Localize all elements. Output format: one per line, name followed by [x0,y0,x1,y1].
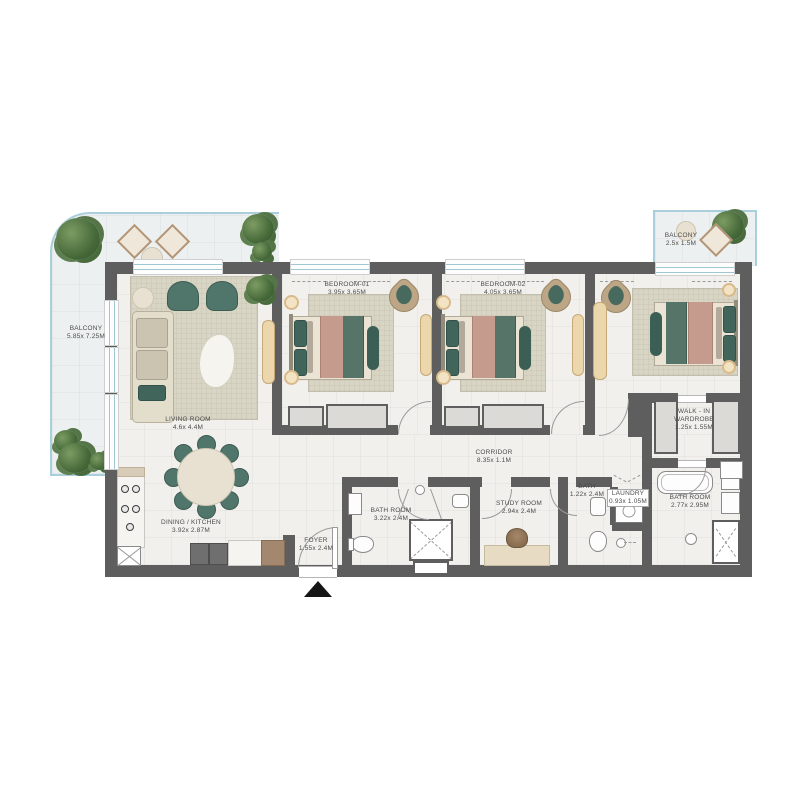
wall-laundry-bottom [612,523,642,531]
pillow [307,321,313,373]
dresser-icon [420,314,432,376]
room-dims: 5.85x 7.25M [67,333,105,341]
room-name: DINING / KITCHEN [161,519,221,527]
room-name: WARDROBE [674,416,714,424]
room-name: STUDY ROOM [496,500,542,508]
curtain-mark [692,281,732,282]
wall-bathroom1-left [342,477,352,565]
room-label-foyer: FOYER 1.55x 2.4M [299,537,333,553]
walkin-door-panel [720,461,743,479]
desk-chair-icon [506,528,528,548]
mirror-icon [348,493,362,515]
dining-table-icon [177,448,235,506]
bedroom1-wardrobe [326,404,388,430]
plant-icon [246,276,274,302]
shower-arm [624,542,636,543]
room-dims: 0.93x 1.05M [609,498,647,506]
bed-throw [666,302,687,364]
plant-icon [242,214,274,244]
armchair-icon [167,281,199,311]
console-icon [262,320,275,384]
room-label-walkin: WALK - IN WARDROBE 1.25x 1.55M [674,408,714,432]
room-name: CORRIDOR [476,449,513,457]
pillow [446,320,459,347]
stove-burner-icon [132,505,140,513]
room-label-dining: DINING / KITCHEN 3.92x 2.87M [161,519,221,535]
bed-bench-icon [650,312,662,356]
pillow [723,306,736,333]
room-label-laundry: LAUNDRY 0.93x 1.05M [607,489,649,507]
shower-tray-icon [712,520,740,564]
kitchen-shelf [117,467,145,477]
wall-walkin-left [642,393,652,468]
bed-blanket [688,302,713,364]
sofa-cushion [136,318,168,348]
nightstand-lamp-icon [284,370,299,385]
stove-burner-icon [132,485,140,493]
room-name: BEDROOM-02 [481,281,526,289]
walkin-closet [712,400,740,454]
wall-bedroom1-bottom [430,425,442,435]
toilet-icon [352,536,374,553]
room-name: BALCONY [665,232,697,240]
room-label-bathroom-main: BATH ROOM 3.22x 2.4M [371,507,412,523]
room-dims: 3.92x 2.87M [161,527,221,535]
balcony-sliding-door [104,347,119,393]
sink-icon [590,497,606,516]
room-name: BATH ROOM [371,507,412,515]
room-dims: 4.05x 3.65M [481,289,526,297]
kitchen-cabinet-wood [261,540,285,566]
bedroom2-window [445,259,525,275]
room-name: BATH ROOM [670,494,711,502]
room-dims: 1.22x 2.4M [570,491,604,499]
plant-icon [252,242,272,261]
room-dims: 2.94x 2.4M [496,508,542,516]
armchair-icon [206,281,238,311]
stove-burner-icon [121,485,129,493]
sink-icon [721,492,740,514]
room-label-bathroom-master: BATH ROOM 2.77x 2.95M [670,494,711,510]
kitchen-counter [228,540,263,566]
living-room-sliding-door [133,259,223,275]
shaft-panel [413,561,449,575]
nightstand-lamp-icon [722,360,736,374]
room-dims: 1.55x 2.4M [299,545,333,553]
side-table-icon [132,287,154,309]
sofa-cushion [136,350,168,380]
kitchen-cabinet-dark [209,543,228,565]
master-balcony-sliding-door [655,262,735,276]
sofa-pillow [138,385,166,401]
curtain-mark [292,281,326,282]
room-dims: 1.25x 1.55M [674,424,714,432]
nightstand-lamp-icon [436,370,451,385]
wall-corridor-bottom [352,477,398,487]
room-name: BALCONY [67,325,105,333]
room-label-balcony-left: BALCONY 5.85x 7.25M [67,325,105,341]
desk-icon [484,545,550,566]
floor-plan-canvas: BALCONY 5.85x 7.25M LIVING ROOM 4.6x 4.4… [0,0,800,800]
room-name: FOYER [299,537,333,545]
pillow [716,307,722,359]
bedroom2-wardrobe [444,406,480,428]
entrance-arrow-icon [304,581,332,597]
room-name: LIVING ROOM [165,416,211,424]
bed-throw [343,316,364,378]
room-label-bedroom1: BEDROOM-01 3.95x 3.65M [325,281,370,297]
drain-icon [685,533,697,545]
room-label-living: LIVING ROOM 4.6x 4.4M [165,416,211,432]
pillow [723,335,736,362]
shaft-icon [409,519,453,561]
room-label-bedroom2: BEDROOM-02 4.05x 3.65M [481,281,526,297]
toilet-icon [589,531,607,552]
bed-throw [495,316,516,378]
nightstand-lamp-icon [284,295,299,310]
wall-master-entry-stub [628,393,642,437]
wall-bedroom2-bottom [583,425,595,435]
room-dims: 3.95x 3.65M [325,289,370,297]
balcony-sliding-door [104,300,119,346]
room-name: LAUNDRY [609,490,647,498]
dresser-icon [593,302,607,380]
wall-masterbath-left [642,465,652,565]
bed-blanket [320,316,345,378]
nightstand-lamp-icon [722,283,736,297]
bed-blanket [472,316,497,378]
room-dims: 4.6x 4.4M [165,424,211,432]
room-name: BEDROOM-01 [325,281,370,289]
walkin-entry-sill [678,395,706,403]
plant-icon [58,443,92,473]
kitchen-cabinet-dark [190,543,209,565]
pillow [459,321,465,373]
nightstand-lamp-icon [436,295,451,310]
room-dims: 2.5x 1.5M [665,240,697,248]
stove-burner-icon [126,523,134,531]
pillow [294,320,307,347]
toilet-tank [348,538,354,551]
room-label-balcony-right: BALCONY 2.5x 1.5M [665,232,697,248]
curtain-mark [446,281,480,282]
shower-head-icon [616,538,626,548]
wall-bathroom1-study [470,477,480,565]
room-name: WALK - IN [674,408,714,416]
wall-corridor-bottom [511,477,550,487]
stove-burner-icon [121,505,129,513]
sink-icon [452,494,469,508]
room-label-bath: BATH 1.22x 2.4M [570,483,604,499]
bed-bench-icon [519,326,531,370]
room-dims: 2.77x 2.95M [670,502,711,510]
kitchen-sink-icon [117,546,141,566]
bedroom1-wardrobe [288,406,324,428]
bedroom1-window [290,259,370,275]
bed-bench-icon [367,326,379,370]
room-dims: 8.35x 1.1M [476,457,513,465]
wall-walkin-bottom [642,458,678,468]
room-dims: 3.22x 2.4M [371,515,412,523]
wall-right [740,262,752,577]
room-label-corridor: CORRIDOR 8.35x 1.1M [476,449,513,465]
room-name: BATH [570,483,604,491]
balcony-sliding-door [104,394,119,470]
bedroom2-wardrobe [482,404,544,430]
room-label-study: STUDY ROOM 2.94x 2.4M [496,500,542,516]
dresser-icon [572,314,584,376]
masterbath-entry-sill [678,460,706,468]
plant-icon [56,218,100,260]
